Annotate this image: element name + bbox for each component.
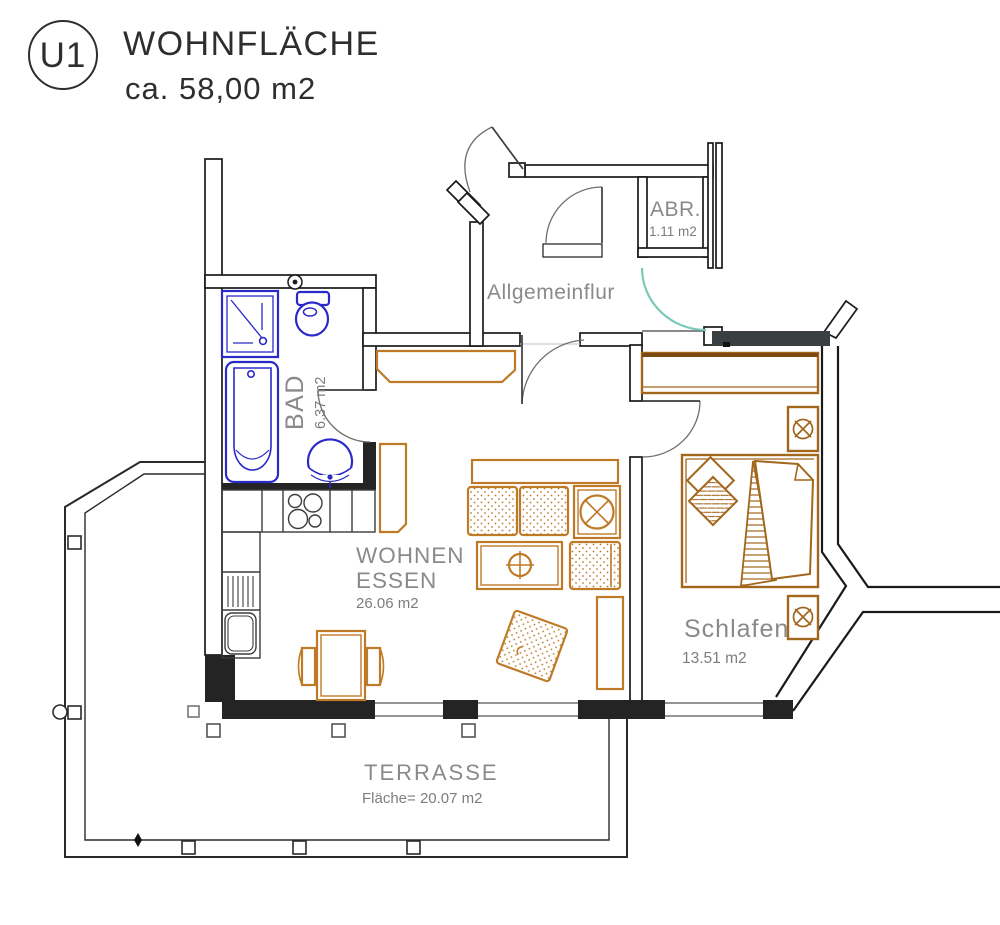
label-living-1: WOHNEN: [356, 543, 465, 568]
armchair: [570, 542, 620, 589]
label-bad: BAD: [281, 374, 309, 430]
wall-bath-kitchen-divider: [222, 483, 376, 490]
label-bad-area: 6.37 m2: [313, 377, 329, 429]
wall-sw-block: [205, 655, 235, 702]
sofa-back: [472, 460, 618, 483]
bed: [682, 455, 818, 587]
wall-south-pier-3: [763, 700, 793, 719]
door-arc-building-entry: [465, 127, 492, 192]
wall-cap: [509, 163, 525, 177]
label-living-area: 26.06 m2: [356, 595, 419, 612]
door-arc-apartment-entry: [522, 340, 584, 404]
toilet-icon: [296, 292, 329, 336]
coffee-table: [477, 542, 562, 589]
armchair-rotated: [496, 610, 568, 682]
wall-party-2: [716, 143, 722, 268]
wall-bath-east-lower: [363, 442, 376, 490]
sink-icon: [308, 439, 352, 488]
window-living-1: [375, 703, 443, 716]
wall-south-pier-2: [578, 700, 665, 719]
window-living-2: [478, 703, 578, 716]
kitchen-sink-icon: [225, 613, 256, 654]
label-bedroom: Schlafen: [684, 615, 789, 643]
lamp-table: [574, 486, 620, 538]
hob-icon: [289, 494, 323, 529]
door-arc-bedroom: [643, 401, 700, 457]
sideboard-east: [597, 597, 623, 689]
wall-south-pier-1: [443, 700, 478, 719]
living-furniture: [299, 351, 624, 700]
wall-living-north-1: [363, 333, 520, 346]
bathtub-icon: [226, 362, 278, 482]
wall-abr-south: [638, 248, 712, 257]
wall-bedroom-divider-lower: [630, 457, 642, 702]
label-living-2: ESSEN: [356, 568, 437, 593]
bedroom-furniture: [642, 353, 818, 639]
terrace-post-small: [188, 706, 199, 717]
terrace-post: [293, 841, 306, 854]
nightstand-1: [788, 407, 818, 451]
sofa-cushion-2: [520, 487, 568, 535]
dining-chair-left: [299, 648, 316, 685]
wall-threshold: [543, 244, 602, 257]
window-bedroom: [665, 703, 763, 716]
vent-icon: [288, 275, 302, 289]
terrace-marker-circle: [53, 705, 67, 719]
page-subtitle: ca. 58,00 m2: [125, 71, 316, 106]
wall-party-1: [708, 143, 713, 268]
terrace-post: [462, 724, 475, 737]
header: U1 WOHNFLÄCHE ca. 58,00 m2: [29, 21, 380, 106]
page-title: WOHNFLÄCHE: [123, 25, 380, 63]
door-arc-teal: [642, 268, 706, 330]
wall-west: [205, 159, 222, 655]
terrace-post: [68, 706, 81, 719]
terrace-post: [332, 724, 345, 737]
terrace-post: [407, 841, 420, 854]
floorplan-drawing: U1 WOHNFLÄCHE ca. 58,00 m2: [0, 0, 1000, 925]
label-terrace: TERRASSE: [364, 760, 499, 785]
wall-tick: [723, 342, 730, 347]
wall-hall-west: [470, 222, 483, 346]
terrace-post: [207, 724, 220, 737]
wardrobe: [642, 353, 818, 393]
dining-set: [299, 631, 384, 700]
label-abr: ABR.: [650, 198, 701, 221]
wall-east-outer: [838, 346, 1000, 587]
label-terrace-area: Fläche= 20.07 m2: [362, 790, 483, 807]
shower-icon: [222, 291, 278, 357]
terrace-marker-diamond: [134, 833, 142, 847]
wall-se-diagonal: [793, 612, 1000, 711]
tall-cabinet: [380, 444, 406, 532]
nightstand-2: [788, 596, 818, 639]
dining-chair-right: [367, 648, 384, 685]
door-leaf-building-entry: [492, 127, 523, 169]
label-abr-area: 1.11 m2: [649, 224, 697, 239]
label-hall: Allgemeinflur: [487, 281, 615, 304]
sofa-cushion-1: [468, 487, 517, 535]
door-arc-hall: [546, 187, 602, 243]
wall-living-north-2: [580, 333, 642, 346]
unit-badge-label: U1: [40, 36, 87, 75]
kitchen-rack: [228, 576, 253, 607]
label-bedroom-area: 13.51 m2: [682, 650, 747, 667]
terrace-post: [182, 841, 195, 854]
terrace-post: [68, 536, 81, 549]
wall-hall-north: [525, 165, 713, 177]
wall-abr-west: [638, 177, 647, 257]
wall-south-living: [222, 700, 375, 719]
sideboard-top: [377, 351, 515, 382]
wall-bedroom-divider-upper: [630, 345, 642, 401]
floorplan-canvas: U1 WOHNFLÄCHE ca. 58,00 m2: [0, 0, 1000, 925]
